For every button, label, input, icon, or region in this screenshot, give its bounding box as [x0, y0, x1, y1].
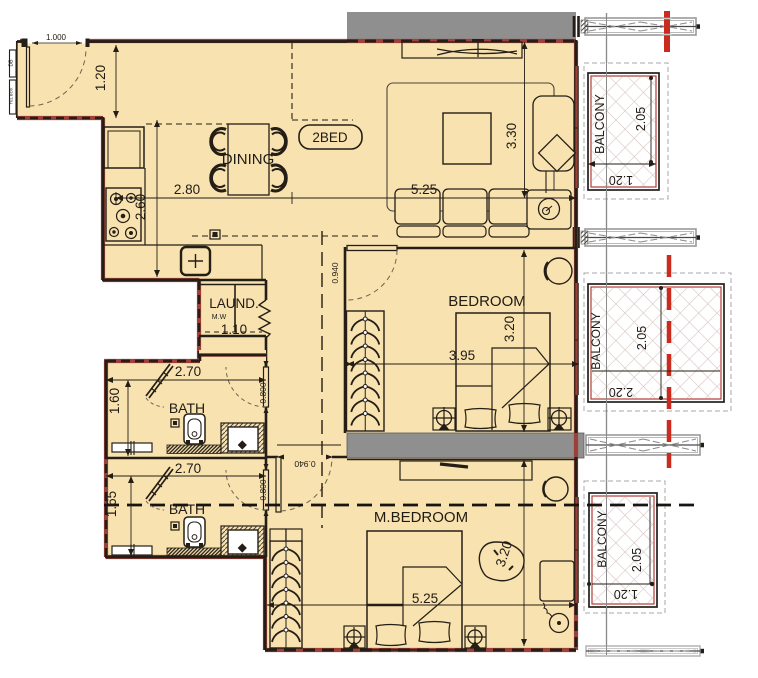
svg-text:5.25: 5.25 [412, 591, 438, 606]
svg-text:2.20: 2.20 [609, 385, 633, 399]
svg-text:LAUND.: LAUND. [209, 296, 259, 311]
svg-text:2.05: 2.05 [634, 107, 648, 131]
svg-text:M.W: M.W [212, 314, 227, 321]
svg-text:DB: DB [9, 59, 15, 67]
svg-text:BEDROOM: BEDROOM [448, 293, 526, 310]
svg-text:3.20: 3.20 [502, 316, 517, 342]
svg-text:0.800: 0.800 [258, 382, 268, 404]
svg-text:1.65: 1.65 [104, 491, 119, 517]
svg-text:0.800: 0.800 [258, 479, 268, 501]
svg-text:BALCONY: BALCONY [589, 312, 603, 369]
svg-text:TEL BOX: TEL BOX [9, 87, 14, 104]
svg-text:BATH: BATH [169, 501, 205, 517]
svg-text:2.05: 2.05 [630, 548, 644, 572]
svg-text:2.70: 2.70 [175, 364, 201, 379]
svg-text:2.70: 2.70 [175, 461, 201, 476]
svg-text:3.30: 3.30 [504, 123, 519, 149]
svg-text:3.95: 3.95 [449, 348, 475, 363]
svg-text:BALCONY: BALCONY [593, 93, 607, 153]
svg-text:M.BEDROOM: M.BEDROOM [374, 509, 468, 526]
svg-text:1.10: 1.10 [221, 322, 247, 337]
svg-text:1.000: 1.000 [46, 33, 67, 42]
svg-text:1.20: 1.20 [609, 173, 633, 187]
svg-text:1.20: 1.20 [93, 65, 108, 91]
svg-text:2BED: 2BED [312, 130, 348, 145]
svg-text:0.940: 0.940 [294, 459, 316, 469]
svg-text:DINING: DINING [222, 151, 275, 168]
svg-text:BATH: BATH [169, 400, 205, 416]
svg-text:2.05: 2.05 [635, 326, 649, 350]
svg-text:1.60: 1.60 [107, 388, 122, 414]
svg-text:5.25: 5.25 [411, 182, 437, 197]
svg-text:BALCONY: BALCONY [595, 510, 609, 567]
svg-text:0.940: 0.940 [330, 262, 340, 284]
svg-text:2.80: 2.80 [174, 182, 200, 197]
svg-text:2.60: 2.60 [133, 194, 148, 220]
svg-text:1.20: 1.20 [614, 587, 638, 601]
